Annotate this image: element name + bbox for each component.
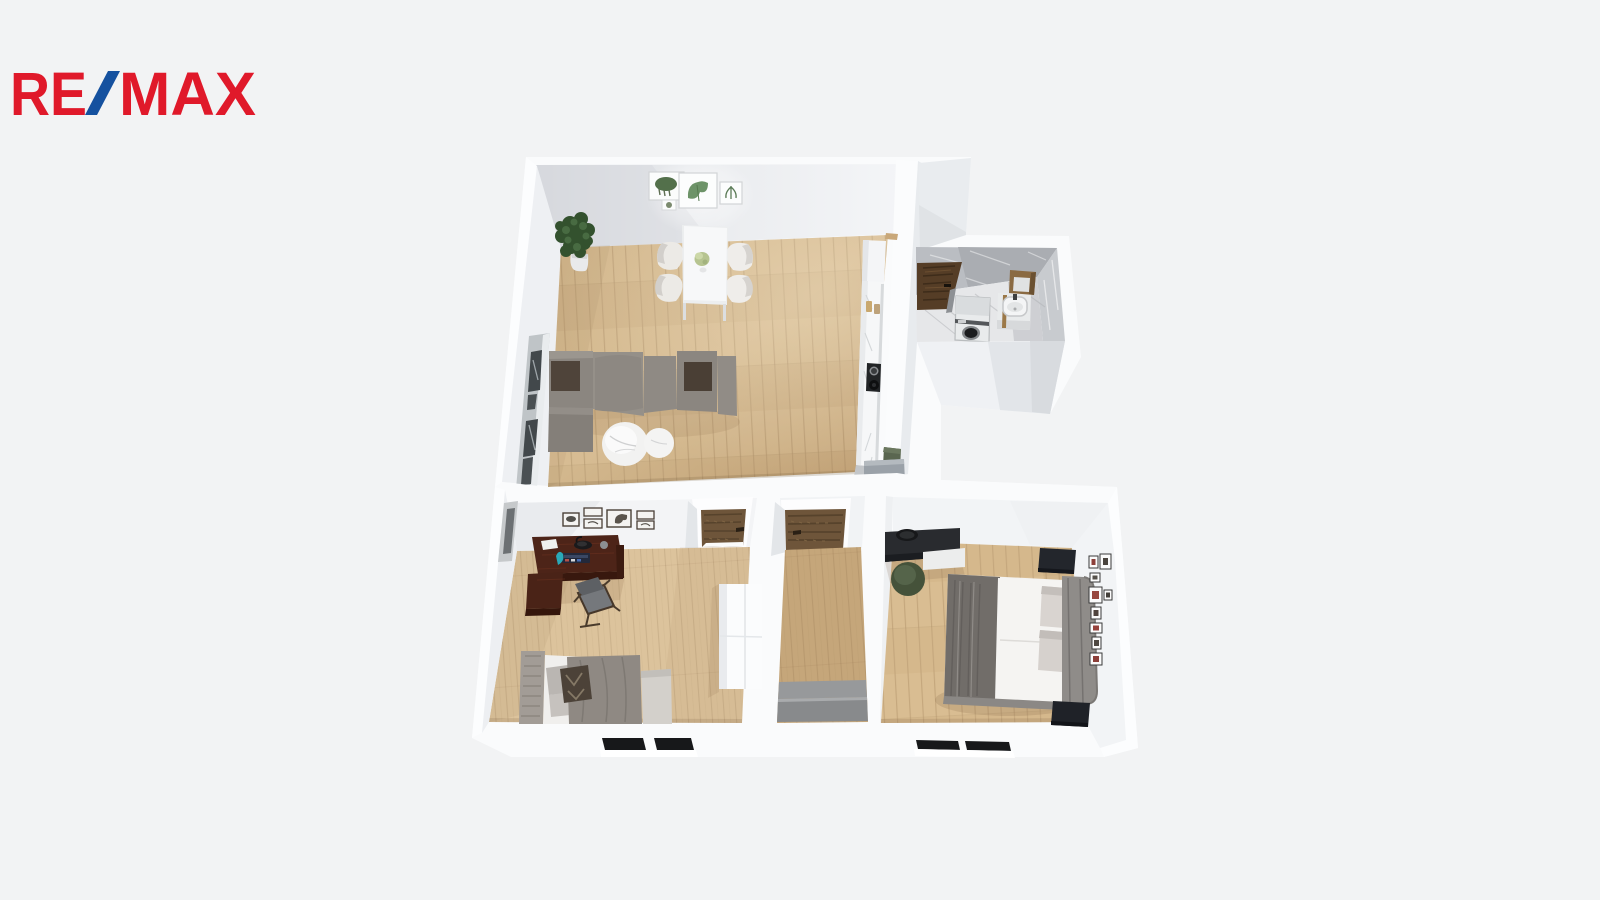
svg-text:MAX: MAX [119, 60, 256, 128]
svg-text:RE: RE [10, 60, 87, 128]
